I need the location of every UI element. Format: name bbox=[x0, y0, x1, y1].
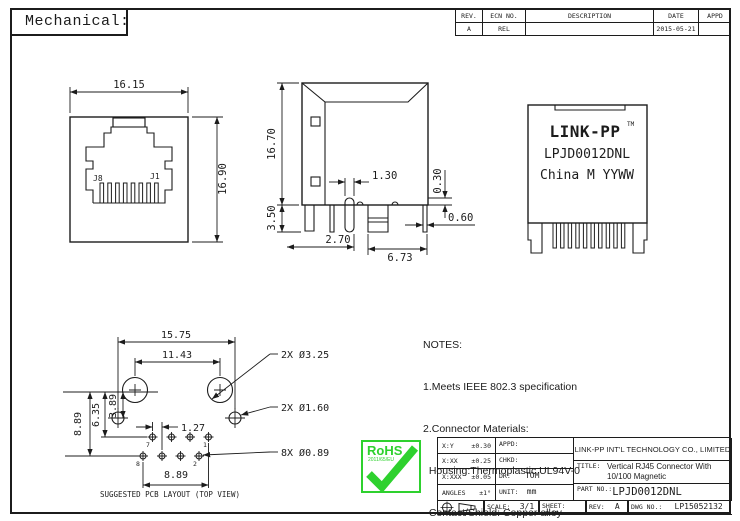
front-pin-label-j8: J8 bbox=[93, 174, 103, 183]
front-pin-label-j1: J1 bbox=[150, 172, 160, 181]
back-pins bbox=[528, 223, 647, 253]
rohs-name: RoHS bbox=[367, 443, 402, 458]
svg-text:0.30: 0.30 bbox=[432, 168, 444, 193]
svg-text:8.89: 8.89 bbox=[73, 412, 84, 436]
rev-cell-appd bbox=[698, 23, 731, 36]
scale-cell: SCALE: 3/1 bbox=[484, 501, 539, 515]
svg-text:6.35: 6.35 bbox=[91, 403, 102, 427]
drawing-sheet: Mechanical: REV. ECN NO. DESCRIPTION DAT… bbox=[0, 0, 740, 521]
side-dim-slot-width: 1.30 bbox=[329, 170, 397, 196]
callout-pins: 8X Ø0.89 bbox=[281, 447, 329, 459]
mechanical-label: Mechanical: bbox=[25, 13, 130, 30]
front-view-drawing: J8 J1 16.15 16.90 bbox=[55, 65, 240, 270]
side-dim-block-span: 6.73 bbox=[368, 234, 427, 264]
pcb-dim-pin-span: 8.89 bbox=[143, 443, 209, 488]
side-dim-step: 0.30 bbox=[428, 168, 452, 218]
sheet-cell: SHEET: 2/2 bbox=[539, 501, 586, 515]
svg-text:16.70: 16.70 bbox=[266, 128, 278, 160]
rev-cell: REV: A bbox=[586, 501, 628, 515]
front-dim-height: 16.90 bbox=[192, 117, 229, 242]
company-cell: LINK-PP INT'L TECHNOLOGY CO., LIMITED bbox=[574, 438, 732, 461]
brand-label: LINK-PP bbox=[550, 122, 621, 141]
dr-cell: DR: TOM bbox=[496, 469, 574, 485]
pcb-dim-hole-span: 15.75 bbox=[118, 330, 235, 409]
rev-header-date: DATE bbox=[653, 10, 698, 23]
back-view-drawing: LINK-PP TM LPJD0012DNL China M YYWW bbox=[515, 95, 700, 270]
svg-text:0.60: 0.60 bbox=[448, 212, 473, 224]
revision-table: REV. ECN NO. DESCRIPTION DATE APPD A REL… bbox=[455, 10, 731, 36]
side-dim-leg-width: 0.60 bbox=[405, 212, 475, 225]
pcb-pin8-label: 8 bbox=[136, 460, 140, 468]
svg-text:8.89: 8.89 bbox=[164, 470, 188, 481]
svg-text:1.27: 1.27 bbox=[181, 423, 205, 434]
svg-text:6.73: 6.73 bbox=[387, 252, 412, 264]
front-dim-width: 16.15 bbox=[70, 79, 188, 113]
svg-text:16.90: 16.90 bbox=[217, 163, 229, 195]
drawing-title-cell: TITLE: Vertical RJ45 Connector With 10/1… bbox=[574, 461, 732, 484]
side-view-drawing: 16.70 3.50 1.30 0.30 0.60 bbox=[245, 60, 480, 290]
title-block: X:Y ±0.30 X:XX ±0.25 X:XXX ±0.05 ANGLES … bbox=[437, 437, 731, 514]
pcb-layout-drawing: 7 1 8 2 15.75 11.43 8.89 6.35 3.89 bbox=[55, 315, 385, 510]
tolerance-row-1: X:Y ±0.30 bbox=[438, 438, 496, 454]
front-contact-pins bbox=[100, 183, 158, 203]
pcb-pin2-label: 2 bbox=[193, 460, 197, 468]
side-dim-pin-length: 3.50 bbox=[266, 205, 301, 232]
origin-label: China M YYWW bbox=[540, 168, 634, 183]
svg-text:3.50: 3.50 bbox=[266, 205, 278, 230]
trademark-label: TM bbox=[627, 121, 635, 128]
pcb-pin7-label: 7 bbox=[146, 441, 150, 449]
rev-cell-rev: A bbox=[455, 23, 482, 36]
svg-text:15.75: 15.75 bbox=[161, 330, 191, 341]
note-line: 2.Connector Materials: bbox=[423, 422, 731, 436]
projection-symbol-cell bbox=[438, 501, 484, 515]
svg-text:11.43: 11.43 bbox=[162, 350, 192, 361]
unit-cell: UNIT: mm bbox=[496, 485, 574, 501]
dwg-no-cell: DWG NO.: LP15052132 bbox=[628, 501, 732, 515]
notes-title: NOTES: bbox=[423, 338, 731, 352]
pcb-dim-post-span: 11.43 bbox=[135, 350, 220, 376]
callout-posts: 2X Ø3.25 bbox=[281, 349, 329, 361]
drawing-title-line2: 10/100 Magnetic bbox=[607, 472, 728, 482]
svg-text:1.30: 1.30 bbox=[372, 170, 397, 182]
tolerance-row-4: ANGLES ±1° bbox=[438, 485, 496, 501]
projection-symbol-icon bbox=[438, 501, 482, 514]
side-dim-height: 16.70 bbox=[266, 83, 299, 205]
rev-cell-description bbox=[525, 23, 653, 36]
rev-header-description: DESCRIPTION bbox=[525, 10, 653, 23]
rev-header-appd: APPD bbox=[698, 10, 731, 23]
rohs-logo: RoHS 2011/65/EU bbox=[361, 440, 421, 493]
svg-text:2.70: 2.70 bbox=[325, 234, 350, 246]
drawing-title-line1: Vertical RJ45 Connector With bbox=[607, 462, 728, 472]
tolerance-row-2: X:XX ±0.25 bbox=[438, 454, 496, 469]
tolerance-row-3: X:XXX ±0.05 bbox=[438, 469, 496, 485]
mechanical-label-box: Mechanical: bbox=[10, 8, 128, 36]
rev-header-ecn: ECN NO. bbox=[482, 10, 525, 23]
rohs-directive: 2011/65/EU bbox=[368, 457, 394, 463]
side-body-outline bbox=[302, 83, 428, 232]
pcb-dim-left-rows: 8.89 6.35 3.89 bbox=[73, 392, 147, 456]
svg-text:3.89: 3.89 bbox=[108, 394, 119, 418]
front-body-outline bbox=[70, 117, 188, 242]
pcb-callouts: 2X Ø3.25 2X Ø1.60 8X Ø0.89 bbox=[203, 349, 329, 459]
pcb-caption: SUGGESTED PCB LAYOUT (TOP VIEW) bbox=[100, 490, 240, 499]
note-line: 1.Meets IEEE 802.3 specification bbox=[423, 380, 731, 394]
side-dim-post-offset: 2.70 bbox=[287, 234, 354, 251]
rev-cell-date: 2015-05-21 bbox=[653, 23, 698, 36]
part-number-label: LPJD0012DNL bbox=[544, 147, 630, 162]
rev-header-rev: REV. bbox=[455, 10, 482, 23]
callout-holes: 2X Ø1.60 bbox=[281, 402, 329, 414]
appd-cell: APPD: bbox=[496, 438, 574, 454]
rev-cell-ecn: REL bbox=[482, 23, 525, 36]
part-number-cell: PART NO.: LPJD0012DNL bbox=[574, 484, 732, 501]
pcb-pin1-label: 1 bbox=[203, 441, 207, 449]
chkd-cell: CHKD: bbox=[496, 454, 574, 469]
svg-text:16.15: 16.15 bbox=[113, 79, 145, 91]
